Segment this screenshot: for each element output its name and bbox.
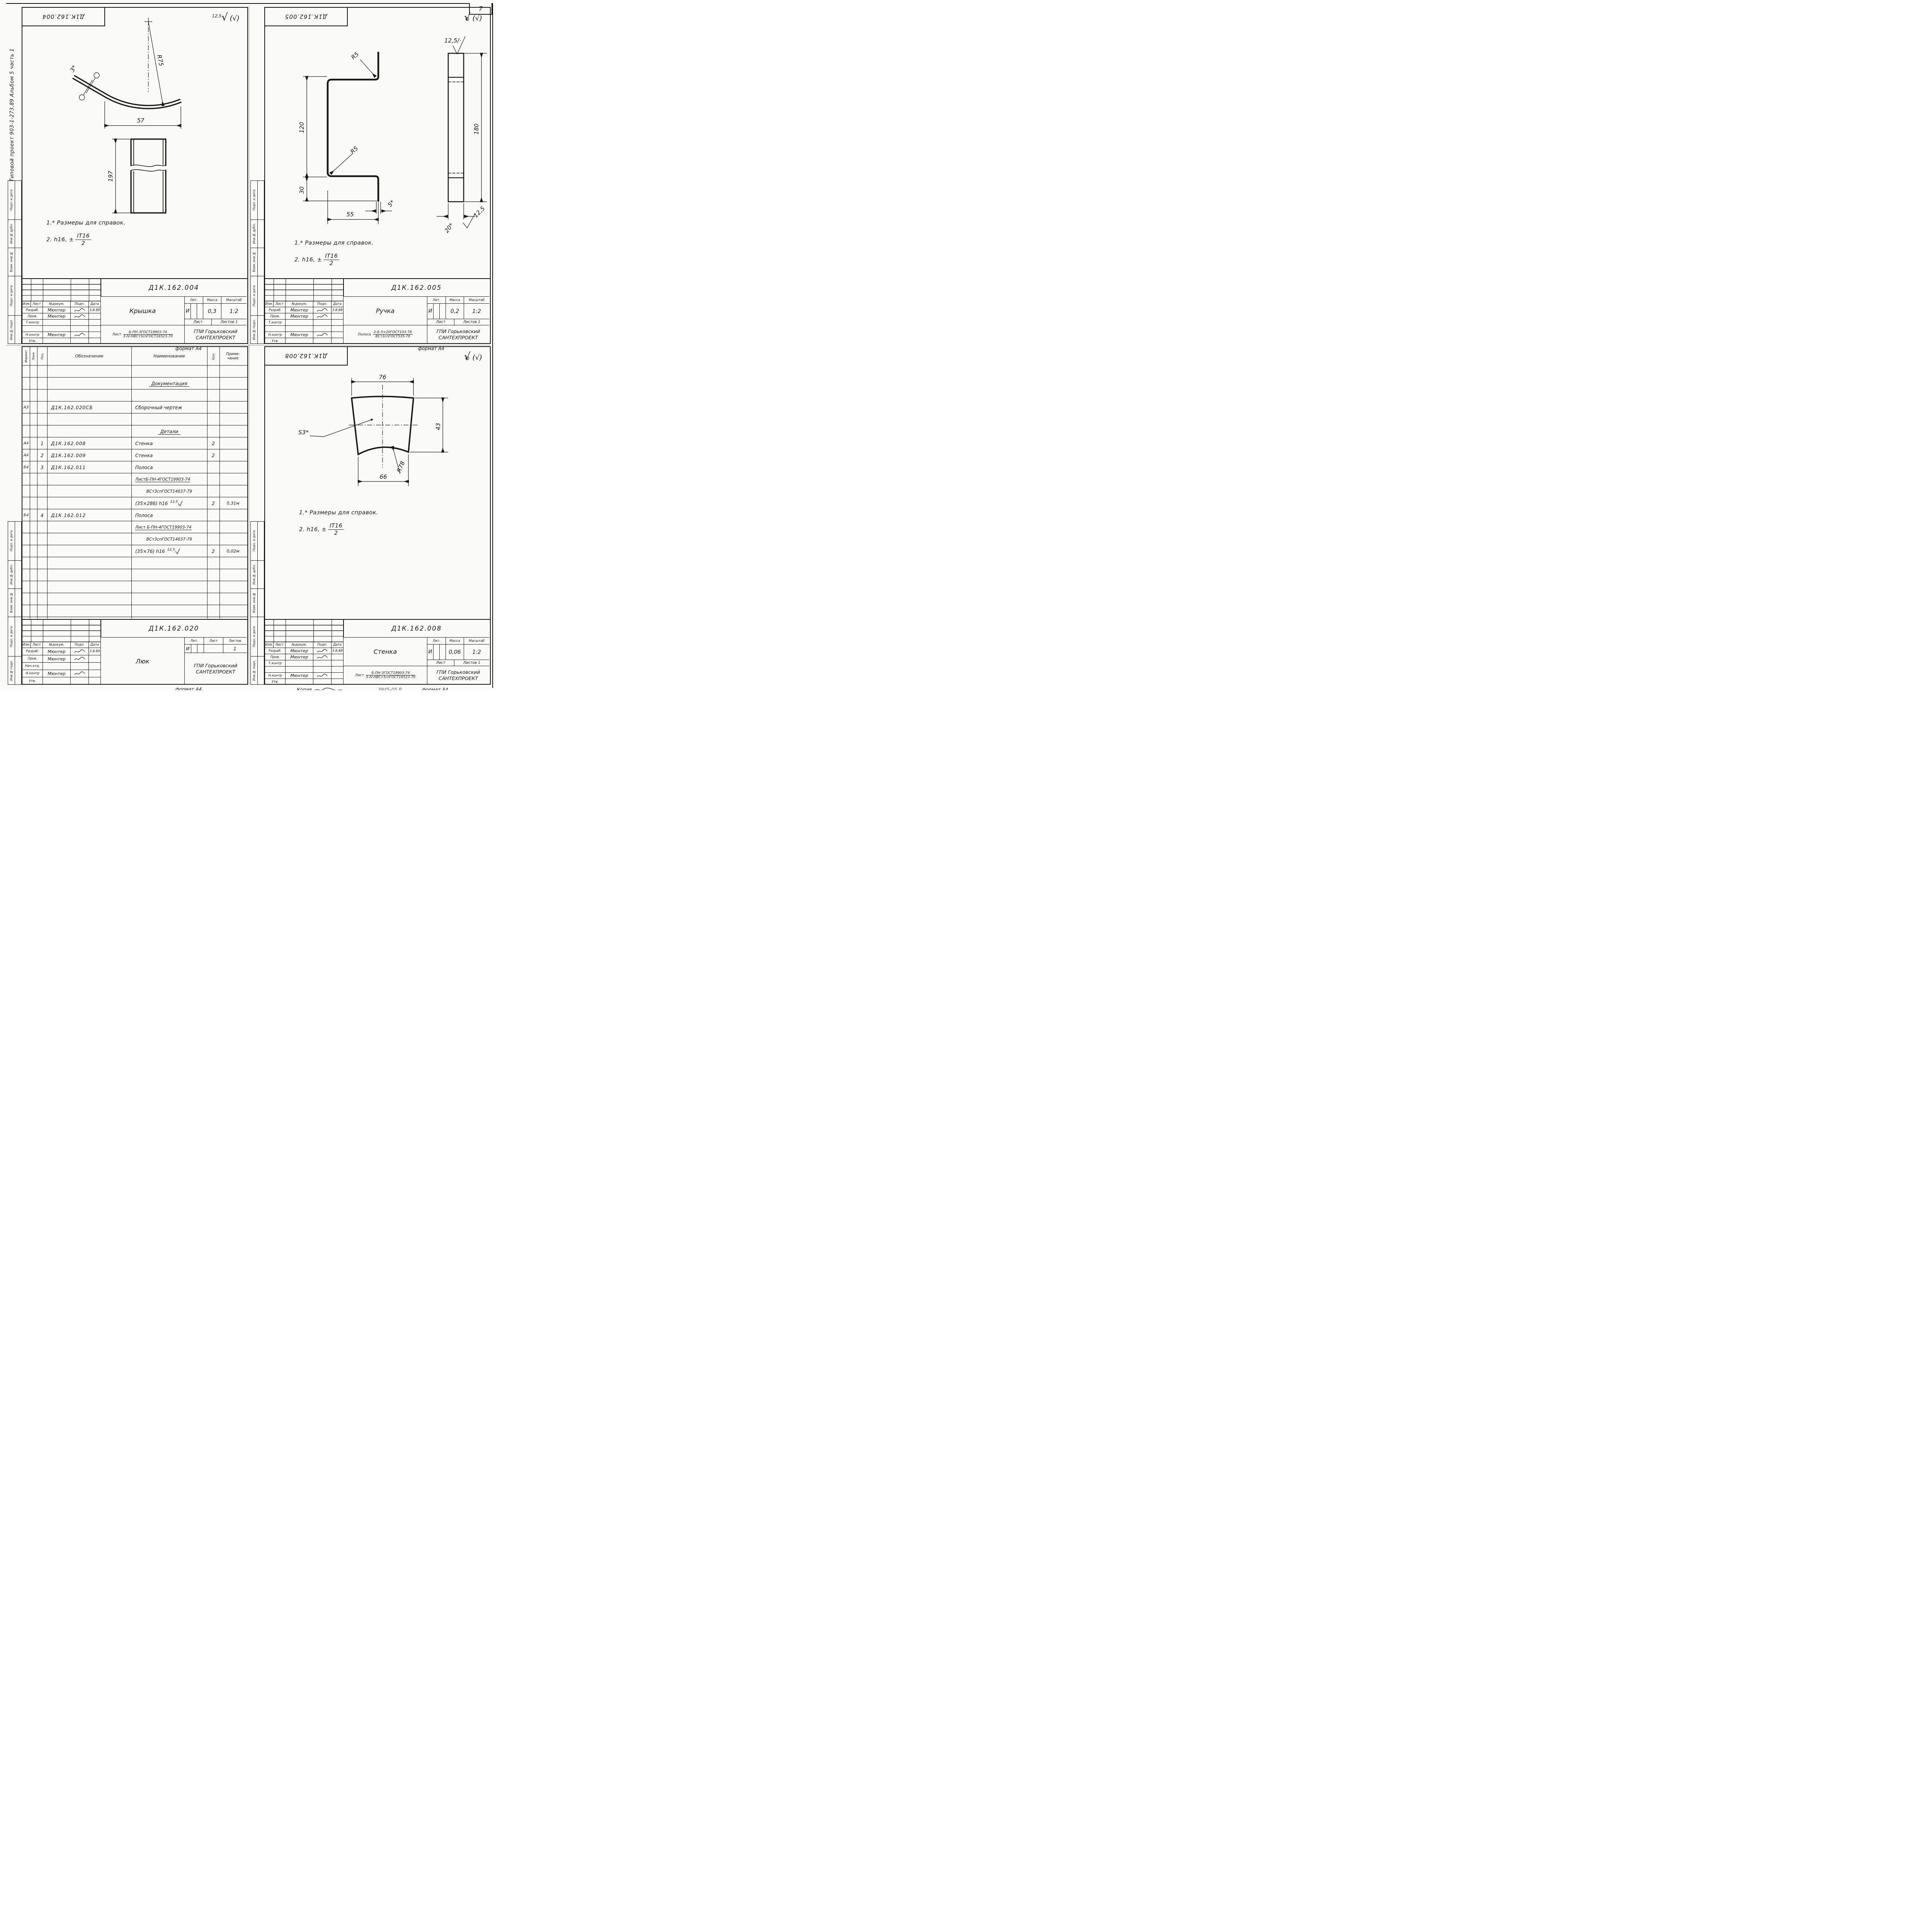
margin-label: Инв.№ дубл. [8, 561, 15, 588]
material-num: Лист Б-ПН-4ГОСТ19903-74 [135, 525, 192, 530]
tb-part-name: Стенка [344, 638, 427, 666]
tb-empty [332, 660, 344, 667]
tb-empty [434, 645, 440, 660]
tb-h-izm: Изм. [265, 642, 274, 648]
notes-block: 1.* Размеры для справок. 2. h16, ±IT162 [299, 509, 378, 543]
org-line1: ГПИ Горьковский [194, 328, 238, 335]
dim-55: 55 [346, 211, 354, 218]
drawing-frame: Д1К.162.008 √ (√) 76 43 66 R78 [264, 346, 491, 685]
note-2: 2. h16, ±IT162 [299, 522, 378, 537]
dim-5star: 5* [386, 199, 396, 208]
title-block: Изм. Лист №докум. Подп. Дата Разраб. Мюн… [22, 619, 247, 684]
spec-col-naimenovanie: Наименование [131, 347, 207, 366]
margin-stamps: Подп. и дата Инв.№ дубл. Взам. инв.№ Под… [250, 521, 264, 685]
spec-row: А41Д1К.162.008Стенка2 [22, 437, 247, 449]
spec-row-section: Документация [22, 378, 247, 389]
cell-format: А4 [22, 441, 30, 446]
tb-razrab: Разраб. [265, 307, 286, 313]
tb-prov: Пров. [265, 654, 286, 660]
tb-date: 3.8.89 [89, 307, 101, 313]
dim-20star: 20* [443, 222, 455, 234]
spec-row: А3Д1К.162.020СБСборочный чертеж [22, 401, 247, 413]
material-prefix: Лист [355, 673, 364, 677]
tb-nachotd: Нач.отд. [22, 663, 43, 670]
spec-row-material: ЛистБ-ПН-4ГОСТ19903-74 [22, 473, 247, 485]
tb-nkontr-name: Мюнтер [286, 332, 313, 338]
frac-den: 2 [75, 240, 91, 247]
spec-row-material: ВСт3спГОСТ14637-79 [22, 533, 247, 545]
tb-scale-value: 1:2 [464, 645, 489, 660]
tb-h-dokum: №докум. [43, 642, 71, 648]
tb-empty [332, 667, 344, 673]
finish-mark: 12,5 [170, 500, 183, 506]
cell-qty: 2 [207, 453, 219, 458]
sheet-stenka: Подп. и дата Инв.№ дубл. Взам. инв.№ Под… [250, 346, 491, 685]
tb-nkontr: Н.контр [22, 670, 43, 677]
tb-listov-value: 1 [223, 645, 247, 653]
tb-razrab-name: Мюнтер [286, 307, 313, 313]
cell-note: 0,02м [219, 549, 247, 554]
tb-prov-sig [313, 654, 332, 660]
stamp-text: Д1К.162.008 [285, 352, 327, 359]
dim-R5-top: R5 [350, 51, 360, 61]
tb-empty [43, 326, 71, 332]
margin-label: Подп. и дата [251, 276, 257, 315]
dim-197: 197 [107, 170, 114, 182]
tb-h-izm: Изм. [22, 642, 31, 648]
material-den: 3-IV-НВСт3спГОСТ16523-70 [366, 675, 416, 679]
cell-designation: Д1К.162.012 [47, 513, 131, 518]
material-den: 3-IV-НВСт3спГОСТ16523-70 [123, 335, 173, 338]
cell-qty: 2 [207, 549, 219, 554]
finish-ra: 12,5 [170, 500, 178, 504]
margin-label: Подп. и дата [251, 181, 257, 219]
tb-list-label: Лист [204, 638, 223, 645]
dimension-lines: 120 30 55 5* R5 R5 180 [298, 36, 487, 234]
dim-R5-bottom: R5 [349, 145, 359, 155]
tb-masshtab-label: Масштаб [464, 638, 489, 645]
tb-nkontr-sig [71, 670, 89, 677]
spec-col-poz: Поз. [37, 347, 47, 366]
spec-row-size: (35×286) h1612,520,31м [22, 497, 247, 509]
tb-razrab-sig [313, 307, 332, 313]
tb-empty [89, 670, 101, 677]
dim-3star: 3* [69, 64, 78, 73]
org-line2: САНТЕХПРОЕКТ [439, 675, 478, 682]
tb-organization: ГПИ ГорьковскийСАНТЕХПРОЕКТ [427, 666, 489, 685]
cell-name: Полоса [131, 465, 207, 470]
tb-empty [89, 338, 101, 344]
tb-date: 3.8.89 [89, 648, 101, 655]
tb-nkontr: Н.контр [22, 332, 43, 338]
cell-pos: 2 [37, 453, 47, 458]
copy-number: 3945-05 Р [378, 687, 401, 690]
tb-empty [332, 320, 344, 326]
margin-stamps: Подп. и дата Инв.№ дубл. Взам. инв.№ Под… [8, 521, 22, 685]
tb-empty [332, 326, 344, 332]
tb-utv: Утв. [265, 679, 286, 685]
dim-30: 30 [298, 186, 305, 194]
margin-cell: Подп. и дата [250, 276, 264, 316]
margin-cell: Инв.№ дубл. [8, 561, 22, 589]
cell-name: Сборочный чертеж [131, 405, 207, 410]
tb-razrab: Разраб. [22, 307, 43, 313]
check-circle-icon: √ [464, 351, 471, 362]
tb-empty [89, 663, 101, 670]
tb-razrab-name: Мюнтер [43, 648, 71, 655]
org-line2: САНТЕХПРОЕКТ [196, 669, 235, 675]
margin-cell: Взам. инв.№ [250, 589, 264, 617]
tb-h-data: Дата [89, 301, 101, 307]
tb-lit-label: Лит. [427, 638, 446, 645]
note-2: 2. h16, ±IT162 [46, 233, 126, 247]
dim-76: 76 [379, 374, 386, 381]
tb-empty [332, 673, 344, 679]
tb-empty [286, 320, 313, 326]
tb-empty [313, 326, 332, 332]
dimension-lines: R75 3* 57 197 [69, 18, 181, 213]
margin-label: Подп. и дата [251, 617, 257, 656]
margin-label: Взам. инв.№ [251, 589, 257, 617]
sheet-divider-vertical [249, 6, 249, 685]
org-line2: САНТЕХПРОЕКТ [196, 335, 235, 341]
tb-razrab-sig [313, 648, 332, 654]
tb-masshtab-label: Масштаб [464, 297, 489, 304]
tb-nkontr-sig [71, 332, 89, 338]
tb-empty [286, 667, 313, 673]
margin-strip: Типовой проект 903-1-273,89 Альбом 5 час… [8, 7, 22, 344]
tb-organization: ГПИ ГорьковскийСАНТЕХПРОЕКТ [185, 653, 247, 685]
cell-qty: 2 [207, 441, 219, 446]
spec-col-kol: Кол. [207, 347, 219, 366]
material-den: ВСт3спГОСТ535-79 [373, 335, 413, 338]
tb-scale-value: 1:2 [464, 304, 489, 319]
spec-row: Б43Д1К.162.011Полоса [22, 461, 247, 473]
cell-qty: 2 [207, 501, 219, 506]
tb-empty [43, 677, 71, 685]
sheet-kryshka: Типовой проект 903-1-273,89 Альбом 5 час… [8, 7, 248, 344]
tb-razrab: Разраб. [265, 648, 286, 654]
spec-row-section: Детали [22, 425, 247, 437]
tb-empty [265, 326, 286, 332]
tb-prov: Пров. [265, 313, 286, 320]
tb-prov-name: Мюнтер [43, 313, 71, 320]
frac-num: IT16 [328, 522, 344, 530]
tb-empty [434, 304, 440, 319]
tb-empty [286, 338, 313, 344]
tb-nkontr: Н.контр [265, 673, 286, 679]
dim-S3star: S3* [298, 429, 309, 436]
cell-name: Полоса [131, 513, 207, 518]
tb-date: 3.8.89 [332, 648, 344, 654]
tb-tkontr: Т.контр [265, 660, 286, 667]
tb-empty [286, 679, 313, 685]
drawing-frame: Д1К.162.005 √ (√) 120 30 55 5* [264, 7, 491, 344]
material-fraction: Б-ПН-3ГОСТ19903-743-IV-НВСт3спГОСТ16523-… [366, 671, 416, 679]
col-label: Кол. [212, 353, 215, 360]
scanned-drawing-page: 7 Типовой проект 903-1-273,89 Альбом 5 ч… [0, 0, 496, 690]
tb-empty [332, 654, 344, 660]
tb-nkontr-name: Мюнтер [43, 670, 71, 677]
tb-designation: Д1К.162.020 [101, 620, 247, 638]
tb-h-data: Дата [332, 301, 344, 307]
margin-label: Инв.№ подл. [8, 656, 15, 684]
tb-list-label: Лист [185, 319, 212, 325]
margin-label: Подп. и дата [8, 617, 15, 656]
tb-lit-label: Лит. [185, 297, 203, 304]
page-top-edge [6, 3, 469, 4]
tb-prov: Пров. [22, 313, 43, 320]
margin-cell: Инв.№ подл. [8, 656, 22, 685]
tb-h-izm: Изм. [265, 301, 274, 307]
dim-120: 120 [298, 122, 305, 133]
tb-prov: Пров. [22, 655, 43, 663]
change-log-grid [22, 620, 101, 642]
tb-razrab: Разраб. [22, 648, 43, 655]
dim-R78: R78 [395, 460, 406, 473]
tb-scale-value: 1:2 [221, 304, 247, 319]
tb-designation: Д1К.162.005 [344, 279, 489, 297]
tb-lit-value: И [427, 645, 434, 660]
tb-empty [332, 313, 344, 320]
note-1: 1.* Размеры для справок. [299, 509, 378, 516]
tb-empty [43, 663, 71, 670]
views-ruchka: 120 30 55 5* R5 R5 180 [270, 19, 496, 235]
margin-cell: Инв.№ подл. [250, 316, 264, 344]
tb-massa-label: Масса [446, 297, 464, 304]
tb-h-data: Дата [332, 642, 344, 648]
org-line1: ГПИ Горьковский [437, 328, 480, 335]
tb-empty [43, 338, 71, 344]
note-1: 1.* Размеры для справок. [46, 219, 126, 226]
tb-mass-value: 0,2 [446, 304, 464, 319]
tb-empty [191, 645, 197, 653]
tb-empty [89, 655, 101, 663]
inverted-designation-stamp: Д1К.162.008 [265, 347, 348, 366]
tb-prov-name: Мюнтер [286, 654, 313, 660]
tb-empty [332, 332, 344, 338]
note-1: 1.* Размеры для справок. [294, 240, 374, 247]
sheet-divider-horizontal [6, 345, 490, 345]
spec-row-material: Лист Б-ПН-4ГОСТ19903-74 [22, 521, 247, 533]
tb-listov-label: Листов 1 [454, 660, 489, 666]
tb-empty [71, 338, 89, 344]
tb-massa-label: Масса [446, 638, 464, 645]
cell-format: Б4 [22, 465, 30, 469]
tb-material: Лист Б-ПН-3ГОСТ19903-743-IV-НВСт3спГОСТ1… [344, 666, 427, 685]
tolerance-fraction: IT162 [323, 253, 339, 267]
tb-date: 3.8.89 [332, 307, 344, 313]
tb-prov-sig [71, 313, 89, 320]
cell-note: 0,31м [219, 501, 247, 506]
cell-pos: 4 [37, 513, 47, 518]
sheet-ruchka: Подп. и дата Инв.№ дубл. Взам. инв.№ Под… [250, 7, 491, 344]
spec-row: А42Д1К.162.009Стенка2 [22, 449, 247, 461]
section-title: Документация [149, 381, 190, 387]
tb-h-list: Лист [31, 301, 43, 307]
tb-masshtab-label: Масштаб [221, 297, 247, 304]
tb-listov-label: Листов 1 [454, 319, 489, 325]
margin-cell: Инв.№ дубл. [8, 220, 22, 248]
tb-empty [22, 326, 43, 332]
frac-num: IT16 [323, 253, 339, 260]
margin-cell: Взам. инв.№ [8, 248, 22, 276]
margin-label: Инв.№ дубл. [8, 220, 15, 248]
view-stenka: 76 43 66 R78 S3* [274, 370, 496, 498]
fin-top-mark: 12,5/· [444, 37, 461, 44]
tb-designation: Д1К.162.004 [101, 279, 247, 297]
tb-empty [197, 645, 204, 653]
margin-cell: Инв.№ подл. [250, 656, 264, 685]
cell-pos: 3 [37, 465, 47, 470]
tb-list-label: Лист [427, 660, 454, 666]
dim-180: 180 [473, 124, 480, 135]
tb-empty [286, 326, 313, 332]
change-log-grid [22, 279, 101, 301]
tb-lit-value: И [185, 645, 191, 653]
tb-h-podp: Подп. [71, 301, 89, 307]
tb-nkontr: Н.контр [265, 332, 286, 338]
format-note: формат А4 [175, 687, 202, 690]
tb-empty [71, 663, 89, 670]
spec-col-primechanie: Приме-чание [219, 347, 247, 366]
margin-label: Инв.№ подл. [251, 656, 257, 684]
spec-row-size: (35×76) h1612,520,02м [22, 545, 247, 557]
frac-den: 2 [328, 530, 344, 537]
tb-razrab-sig [71, 307, 89, 313]
material-fraction: Б-ПН-3ГОСТ19903-743-IV-НВСт3спГОСТ16523-… [123, 330, 173, 338]
tb-empty [313, 667, 332, 673]
tb-prov-name: Мюнтер [286, 313, 313, 320]
tb-empty [313, 338, 332, 344]
paren-check-icon: (√) [472, 354, 482, 362]
tb-h-data: Дата [89, 642, 101, 648]
col-label: Формат [24, 350, 28, 362]
tb-mass-value: 0,06 [446, 645, 464, 660]
tb-prov-name: Мюнтер [43, 655, 71, 663]
tb-massa-label: Масса [203, 297, 221, 304]
spec-col-oboznachenie: Обозначение [47, 347, 131, 366]
dim-43: 43 [435, 423, 442, 430]
material-den: ВСт3спГОСТ14637-79 [131, 537, 207, 542]
margin-strip: Подп. и дата Инв.№ дубл. Взам. инв.№ Под… [8, 346, 22, 685]
part-contours [73, 76, 181, 213]
surface-finish-mark: √ (√) [464, 351, 482, 362]
cell-designation: Д1К.162.020СБ [47, 405, 131, 410]
tb-razrab-name: Мюнтер [286, 648, 313, 654]
tb-nkontr-name: Мюнтер [286, 673, 313, 679]
tb-utv: Утв. [265, 338, 286, 344]
tb-h-izm: Изм. [22, 301, 31, 307]
cell-pos: 1 [37, 441, 47, 446]
tb-part-name: Ручка [344, 297, 427, 325]
margin-cell: Инв.№ дубл. [250, 220, 264, 248]
tb-empty [191, 304, 197, 319]
tb-nkontr-sig [313, 332, 332, 338]
margin-strip: Подп. и дата Инв.№ дубл. Взам. инв.№ Под… [250, 346, 264, 685]
tb-razrab-name: Мюнтер [43, 307, 71, 313]
tb-utv: Утв. [22, 677, 43, 685]
tb-empty [286, 660, 313, 667]
tb-designation: Д1К.162.008 [344, 620, 489, 638]
material-prefix: Лист [112, 333, 121, 337]
spec-col-zona: Зона [30, 347, 37, 366]
tb-h-podp: Подп. [313, 642, 332, 648]
change-log-grid [265, 620, 344, 642]
margin-label: Инв.№ дубл. [251, 220, 257, 248]
tb-tkontr: Т.контр [22, 320, 43, 326]
sheet-lyuk-spec: Подп. и дата Инв.№ дубл. Взам. инв.№ Под… [8, 346, 248, 685]
dim-66: 66 [379, 473, 387, 480]
tb-empty [313, 679, 332, 685]
notes-block: 1.* Размеры для справок. 2. h16, ±IT162 [46, 219, 126, 253]
tb-h-dokum: №докум. [286, 642, 313, 648]
tb-empty [43, 320, 71, 326]
frac-num: IT16 [75, 233, 91, 240]
part-contours [328, 53, 464, 202]
title-block: Изм. Лист №докум. Подп. Дата Разраб. Мюн… [265, 619, 490, 684]
tb-empty [332, 338, 344, 344]
tb-h-list: Лист [274, 301, 286, 307]
margin-label: Взам. инв.№ [8, 589, 15, 617]
margin-label: Подп. и дата [251, 522, 257, 560]
tolerance-fraction: IT162 [328, 522, 344, 537]
tb-organization: ГПИ ГорьковскийСАНТЕХПРОЕКТ [427, 325, 489, 344]
margin-cell: Инв.№ подл. [8, 316, 22, 344]
cell-size: (35×286) h16 [135, 501, 168, 506]
drawing-frame: Д1К.162.004 12,5√ (√) R75 3* 57 [22, 7, 248, 344]
tb-utv: Утв. [22, 338, 43, 344]
drawing-frame: Формат Зона Поз. Обозначение Наименовани… [22, 346, 248, 685]
margin-cell: Подп. и дата [8, 617, 22, 656]
tb-material: Полоса 2-Б-5×20ГОСТ103-76ВСт3спГОСТ535-7… [344, 325, 427, 344]
cell-name: Стенка [131, 441, 207, 446]
tb-lit-label: Лит. [427, 297, 446, 304]
tb-empty [265, 667, 286, 673]
margin-cell: Подп. и дата [250, 180, 264, 220]
tb-part-name: Люк [101, 638, 185, 685]
margin-cell: Взам. инв.№ [8, 589, 22, 617]
copy-note: Копия — [297, 687, 342, 690]
spec-row: Б44Д1К.162.012Полоса [22, 509, 247, 521]
tb-h-podp: Подп. [71, 642, 89, 648]
title-block: Изм. Лист №докум. Подп. Дата Разраб. Мюн… [22, 278, 247, 343]
col-label: Зона [32, 352, 35, 360]
note-2: 2. h16, ±IT162 [294, 253, 374, 267]
tb-tkontr: Т.контр [265, 320, 286, 326]
cell-size: (35×76) h16 [135, 549, 165, 554]
tb-empty [204, 645, 223, 653]
margin-label: Подп. и дата [8, 522, 15, 560]
margin-cell: Подп. и дата [8, 180, 22, 220]
tb-empty [440, 645, 446, 660]
tb-h-dokum: №докум. [286, 301, 313, 307]
margin-cell: Подп. и дата [8, 521, 22, 561]
finish-mark: 12,5 [167, 548, 180, 554]
tb-empty [71, 320, 89, 326]
notes-block: 1.* Размеры для справок. 2. h16, ±IT162 [294, 240, 374, 273]
views-kryshka: R75 3* 57 197 [32, 11, 249, 216]
tb-prov-sig [71, 655, 89, 663]
material-num: 2-Б-5×20ГОСТ103-76 [373, 330, 413, 335]
margin-cell: Подп. и дата [250, 617, 264, 656]
material-num: ЛистБ-ПН-4ГОСТ19903-74 [135, 477, 190, 482]
section-title: Детали [158, 429, 181, 435]
tb-empty [89, 320, 101, 326]
tb-mass-value: 0,3 [203, 304, 221, 319]
finish-ra: 12,5 [167, 548, 175, 552]
copy-label: Копия [297, 687, 312, 690]
